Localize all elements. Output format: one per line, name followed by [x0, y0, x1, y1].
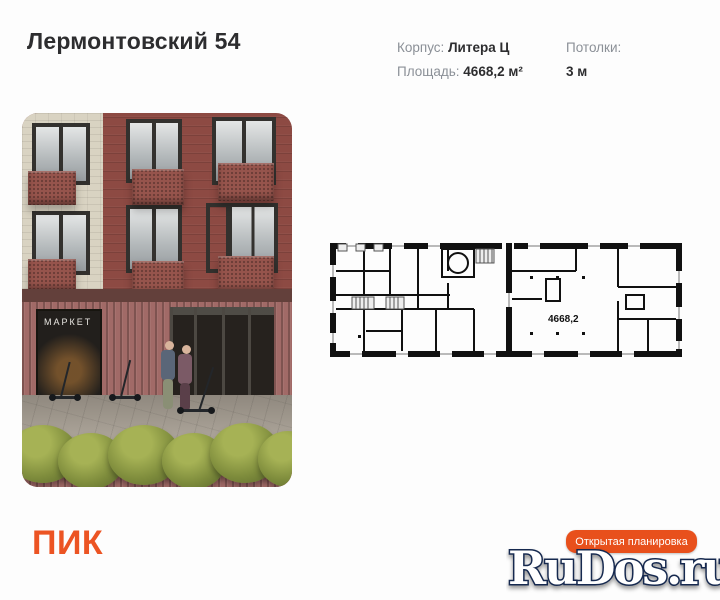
building-photo: МАРКЕТ	[22, 113, 292, 487]
floorplan-area-label: 4668,2	[548, 314, 579, 325]
ceiling-label: Потолки:	[566, 36, 621, 60]
page-title: Лермонтовский 54	[27, 28, 241, 55]
market-sign: МАРКЕТ	[44, 317, 92, 327]
balcony	[28, 171, 76, 205]
spec-area: Площадь: 4668,2 м²	[397, 60, 523, 84]
pik-logo[interactable]: ПИК	[32, 524, 103, 563]
floorplan-outer-walls	[330, 243, 682, 357]
scooter-wheel	[134, 394, 141, 401]
area-label: Площадь:	[397, 64, 460, 79]
balcony	[218, 256, 274, 292]
scooter-wheel	[74, 394, 81, 401]
balcony	[28, 259, 76, 291]
spec-column-right: Потолки: 3 м	[566, 36, 621, 84]
listing-card: Лермонтовский 54 Корпус: Литера Ц Площад…	[0, 0, 720, 600]
person	[165, 341, 174, 350]
person-torso	[161, 350, 175, 380]
person-torso	[178, 354, 192, 384]
open-plan-button[interactable]: Открытая планировка	[566, 530, 697, 553]
scooter-wheel	[177, 407, 184, 414]
scooter-wheel	[49, 394, 56, 401]
area-value: 4668,2 м²	[463, 64, 523, 79]
person	[182, 345, 191, 354]
ceiling-value: 3 м	[566, 60, 621, 84]
balcony	[132, 169, 184, 205]
floor-slab	[22, 289, 292, 302]
building-value: Литера Ц	[448, 40, 509, 55]
floorplan-drawing: 4668,2	[330, 243, 682, 357]
building-label: Корпус:	[397, 40, 444, 55]
storefront-window: МАРКЕТ	[36, 309, 102, 405]
balcony	[218, 163, 274, 201]
scooter-wheel	[109, 394, 116, 401]
spec-column-left: Корпус: Литера Ц Площадь: 4668,2 м²	[397, 36, 523, 84]
scooter-wheel	[208, 407, 215, 414]
person-legs	[163, 379, 173, 409]
spec-building: Корпус: Литера Ц	[397, 36, 523, 60]
